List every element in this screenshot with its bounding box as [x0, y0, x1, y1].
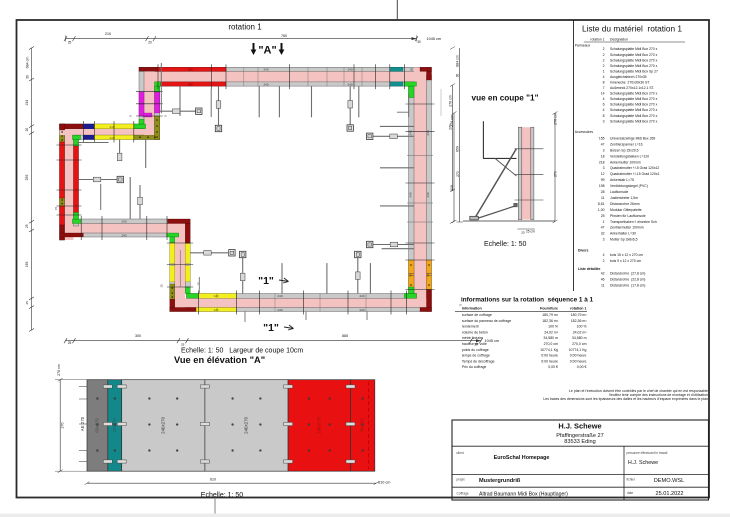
- svg-text:270 cm: 270 cm: [554, 113, 558, 125]
- svg-text:25: 25: [181, 343, 185, 347]
- svg-text:11: 11: [601, 196, 605, 200]
- svg-text:2: 2: [603, 259, 605, 263]
- svg-text:240: 240: [426, 130, 430, 135]
- svg-text:Echelle: 1: 50: Echelle: 1: 50: [484, 241, 527, 248]
- svg-text:100 %: 100 %: [577, 325, 587, 329]
- svg-text:4: 4: [603, 75, 605, 79]
- svg-text:10774,1 Kg: 10774,1 Kg: [540, 348, 558, 352]
- svg-text:Ausgleichsblech 270x35: Ausgleichsblech 270x35: [610, 75, 647, 79]
- svg-text:182,36 m²: 182,36 m²: [571, 319, 588, 323]
- svg-text:"A": "A": [258, 45, 276, 57]
- svg-text:0:00 heure: 0:00 heure: [541, 354, 558, 358]
- svg-text:temps de coffrage: temps de coffrage: [462, 354, 490, 358]
- svg-text:Schalungsplatte Midi Box 270 x: Schalungsplatte Midi Box 270 x: [610, 64, 658, 68]
- svg-text:Echelle: 1: 50: Echelle: 1: 50: [201, 492, 244, 499]
- svg-text:270: 270: [554, 171, 558, 177]
- svg-text:Pfosten für Laufkonsole: Pfosten für Laufkonsole: [610, 214, 646, 218]
- svg-text:180: 180: [187, 68, 192, 72]
- svg-text:14: 14: [601, 92, 605, 96]
- svg-text:3: 3: [603, 166, 605, 170]
- svg-text:Altrad Baumann Midi Box (Haupt: Altrad Baumann Midi Box (Hauptlager): [479, 492, 568, 498]
- svg-text:18: 18: [601, 154, 605, 158]
- svg-text:34,580 m: 34,580 m: [543, 336, 558, 340]
- svg-text:bois 15 x 12 x 270 cm: bois 15 x 12 x 270 cm: [610, 253, 643, 257]
- svg-text:4: 4: [603, 108, 605, 112]
- svg-text:182,36 m²: 182,36 m²: [542, 319, 559, 323]
- svg-text:1: 1: [603, 220, 605, 224]
- svg-text:684 cm: 684 cm: [26, 57, 30, 69]
- svg-text:25 cm: 25 cm: [526, 230, 535, 234]
- svg-text:240: 240: [359, 308, 364, 312]
- svg-text:AE 270: AE 270: [80, 416, 85, 431]
- svg-text:270,0 cm: 270,0 cm: [572, 342, 586, 346]
- svg-text:"1": "1": [263, 322, 279, 334]
- svg-text:198: 198: [599, 184, 605, 188]
- svg-text:0:00 heure: 0:00 heure: [541, 359, 558, 363]
- svg-text:Verdichtungskegel (PVC): Verdichtungskegel (PVC): [610, 184, 648, 188]
- svg-text:Schalungsplatte Midi Box 270 x: Schalungsplatte Midi Box 270 x: [610, 119, 658, 123]
- svg-text:Innenecke 270x30x30 ST.: Innenecke 270x30x30 ST.: [610, 81, 650, 85]
- svg-text:25: 25: [68, 41, 72, 45]
- svg-text:100 %: 100 %: [548, 325, 558, 329]
- svg-text:volume de béton: volume de béton: [462, 330, 488, 334]
- svg-text:0,00 €: 0,00 €: [548, 365, 558, 369]
- svg-text:Schalungsplatte Midi Box 270 x: Schalungsplatte Midi Box 270 x: [610, 108, 658, 112]
- svg-text:vue en coupe "1": vue en coupe "1": [472, 94, 539, 103]
- svg-text:8: 8: [603, 114, 605, 118]
- svg-text:rendement: rendement: [462, 325, 479, 329]
- svg-text:surface du panneau de coffrage: surface du panneau de coffrage: [462, 319, 511, 323]
- svg-text:Prix du coffrage: Prix du coffrage: [462, 365, 487, 369]
- svg-text:Liste du matériel rotation 1: Liste du matériel rotation 1: [582, 24, 682, 34]
- svg-text:34,580 m: 34,580 m: [572, 336, 587, 340]
- svg-text:240: 240: [277, 294, 282, 298]
- svg-text:2: 2: [603, 47, 605, 51]
- svg-text:270 cm: 270 cm: [57, 364, 61, 376]
- svg-text:609: 609: [450, 185, 454, 191]
- svg-text:Justierstrebe 1,5m: Justierstrebe 1,5m: [610, 196, 638, 200]
- svg-text:240: 240: [359, 294, 364, 298]
- svg-text:30: 30: [456, 74, 460, 78]
- svg-text:240: 240: [347, 82, 352, 86]
- svg-text:25: 25: [521, 231, 525, 235]
- svg-text:Distanzrohre (22,8 cm): Distanzrohre (22,8 cm): [610, 277, 645, 281]
- svg-text:12: 12: [601, 172, 605, 176]
- svg-text:32: 32: [601, 232, 605, 236]
- svg-text:25: 25: [25, 301, 29, 305]
- svg-text:10774,1 Kg: 10774,1 Kg: [569, 348, 587, 352]
- svg-text:2: 2: [603, 58, 605, 62]
- svg-text:270: 270: [456, 171, 460, 177]
- svg-text:80: 80: [426, 273, 430, 277]
- svg-text:Mutter Sp 3x8x6,5: Mutter Sp 3x8x6,5: [610, 238, 638, 242]
- svg-text:270 cm: 270 cm: [449, 95, 453, 107]
- svg-text:270: 270: [61, 423, 65, 429]
- svg-text:Distanzrohre (27,8 cm): Distanzrohre (27,8 cm): [610, 271, 645, 275]
- svg-text:rotation 1: rotation 1: [590, 38, 604, 42]
- svg-text:83533 Eding: 83533 Eding: [564, 439, 595, 445]
- svg-text:300: 300: [135, 334, 141, 338]
- svg-text:195: 195: [25, 262, 29, 268]
- svg-text:Schalungsplatte Midi Box 270 x: Schalungsplatte Midi Box 270 x: [610, 47, 658, 51]
- svg-text:20: 20: [148, 41, 152, 45]
- svg-text:42: 42: [601, 271, 605, 275]
- svg-text:25: 25: [601, 214, 605, 218]
- svg-text:surface de coffrage: surface de coffrage: [462, 313, 492, 317]
- svg-text:20: 20: [25, 128, 29, 132]
- svg-text:15: 15: [197, 282, 201, 286]
- svg-text:28: 28: [601, 190, 605, 194]
- svg-text:Accessoires: Accessoires: [575, 130, 594, 134]
- svg-text:métré linéaire: métré linéaire: [462, 336, 483, 340]
- svg-text:0:00 heure: 0:00 heure: [570, 359, 587, 363]
- svg-text:4: 4: [603, 97, 605, 101]
- svg-text:Schalungsplatte Midi Box 270 x: Schalungsplatte Midi Box 270 x: [610, 103, 658, 107]
- svg-text:240x270: 240x270: [244, 416, 249, 433]
- svg-text:684 cm: 684 cm: [456, 55, 460, 67]
- svg-text:659: 659: [456, 146, 460, 152]
- svg-text:client: client: [456, 451, 464, 455]
- svg-text:Information: Information: [462, 307, 482, 311]
- svg-text:3: 3: [603, 238, 605, 242]
- svg-text:0:00 heure: 0:00 heure: [570, 354, 587, 358]
- svg-text:Außeneck 270x12.1x12.1 ST.: Außeneck 270x12.1x12.1 ST.: [610, 86, 654, 90]
- svg-text:6: 6: [603, 103, 605, 107]
- svg-text:255: 255: [25, 175, 29, 181]
- svg-text:7: 7: [603, 86, 605, 90]
- svg-text:Mustergrundriß: Mustergrundriß: [479, 478, 521, 484]
- svg-text:0,00 €: 0,00 €: [577, 365, 587, 369]
- svg-text:240: 240: [426, 192, 430, 197]
- svg-text:poids du coffrage: poids du coffrage: [462, 348, 489, 352]
- svg-text:15: 15: [160, 284, 164, 288]
- svg-text:8,61: 8,61: [598, 202, 605, 206]
- svg-text:Panneaux: Panneaux: [575, 43, 591, 47]
- svg-text:885: 885: [342, 334, 348, 338]
- svg-text:11: 11: [601, 283, 605, 287]
- svg-text:Zentrierspanner L=16: Zentrierspanner L=16: [610, 142, 643, 146]
- svg-text:180x270: 180x270: [316, 416, 321, 433]
- svg-text:240x270: 240x270: [160, 416, 165, 433]
- svg-text:760: 760: [281, 34, 287, 38]
- svg-text:240: 240: [121, 233, 126, 237]
- svg-text:Schalungsplatte Midi Box 270 x: Schalungsplatte Midi Box 270 x: [610, 53, 658, 57]
- svg-text:47: 47: [601, 226, 605, 230]
- svg-text:25: 25: [25, 224, 29, 228]
- svg-text:610 cm: 610 cm: [378, 481, 390, 485]
- svg-text:134: 134: [25, 100, 29, 106]
- svg-text:rotation 1: rotation 1: [570, 307, 586, 311]
- svg-text:25.01.2022: 25.01.2022: [656, 491, 684, 497]
- svg-text:personne effectuant le travail: personne effectuant le travail: [627, 451, 668, 455]
- svg-text:hauteur de voile: hauteur de voile: [462, 342, 487, 346]
- svg-text:1,00: 1,00: [598, 208, 605, 212]
- svg-text:Echelle: 1: 50 Largeur de co: Echelle: 1: 50 Largeur de coupe 10cm: [181, 347, 303, 354]
- svg-text:180: 180: [187, 82, 192, 86]
- svg-text:EuroSchal Homepage: EuroSchal Homepage: [494, 455, 550, 461]
- svg-text:240: 240: [408, 192, 412, 197]
- svg-text:Bolzen Sp 15x29,5: Bolzen Sp 15x29,5: [610, 148, 639, 152]
- svg-text:180,79 m²: 180,79 m²: [542, 313, 559, 317]
- svg-text:Zentriermutter 100mm: Zentriermutter 100mm: [610, 226, 644, 230]
- svg-text:99: 99: [601, 178, 605, 182]
- svg-text:Divers: Divers: [578, 249, 588, 253]
- svg-text:Modular Gitterpalette: Modular Gitterpalette: [610, 208, 642, 212]
- svg-text:1045 cm: 1045 cm: [427, 37, 442, 41]
- svg-text:80: 80: [408, 273, 412, 277]
- svg-text:240: 240: [263, 68, 268, 72]
- svg-text:4: 4: [603, 253, 605, 257]
- svg-text:Schalungsplatte Midi Box 270 x: Schalungsplatte Midi Box 270 x: [610, 97, 658, 101]
- svg-text:P: P: [460, 304, 462, 308]
- svg-text:informations sur la rotation: informations sur la rotation séquence 1 …: [461, 297, 594, 304]
- svg-text:Distanzrohre (17,8 cm): Distanzrohre (17,8 cm): [610, 283, 645, 287]
- svg-text:240: 240: [121, 220, 126, 224]
- svg-text:30: 30: [410, 67, 414, 71]
- svg-text:Vue en élévation "A": Vue en élévation "A": [174, 355, 265, 365]
- svg-text:"1": "1": [258, 275, 274, 287]
- svg-text:Ankermutter 100mm: Ankermutter 100mm: [610, 160, 641, 164]
- svg-text:Les bases des dimensions sont: Les bases des dimensions sont les épaiss…: [543, 397, 708, 401]
- svg-text:46: 46: [601, 277, 605, 281]
- svg-text:rotation 1: rotation 1: [228, 23, 262, 32]
- svg-text:25: 25: [68, 341, 72, 345]
- svg-text:Ankerstab L=75: Ankerstab L=75: [610, 178, 634, 182]
- svg-text:270 cm: 270 cm: [450, 115, 454, 127]
- svg-text:155: 155: [599, 137, 605, 141]
- svg-text:3: 3: [603, 148, 605, 152]
- svg-text:8: 8: [603, 81, 605, 85]
- svg-text:Fourniture: Fourniture: [540, 307, 558, 311]
- svg-text:Temps de décoffrage: Temps de décoffrage: [462, 359, 495, 363]
- svg-text:24,02 m³: 24,02 m³: [573, 330, 588, 334]
- svg-text:47: 47: [601, 142, 605, 146]
- svg-text:Ankerhalter L=30: Ankerhalter L=30: [610, 232, 636, 236]
- svg-text:Pfaffingerstraße 27: Pfaffingerstraße 27: [556, 433, 603, 439]
- svg-text:240: 240: [408, 130, 412, 135]
- svg-text:Schalungsplatte Midi Box 270 x: Schalungsplatte Midi Box 270 x: [610, 92, 658, 96]
- svg-text:218: 218: [599, 160, 605, 164]
- svg-text:fichier: fichier: [627, 478, 636, 482]
- svg-text:610: 610: [210, 478, 216, 482]
- svg-text:Coffrage: Coffrage: [457, 492, 469, 496]
- svg-text:120: 120: [214, 294, 219, 298]
- svg-text:Schalungsplatte Midi Box 270 x: Schalungsplatte Midi Box 270 x: [610, 114, 658, 118]
- svg-text:bois 9 x 12 x 270 cm: bois 9 x 12 x 270 cm: [610, 259, 641, 263]
- svg-text:Transporthaken f. einzelne Sch: Transporthaken f. einzelne Sch: [610, 220, 657, 224]
- svg-text:Quadratmutter +/-15 Grad 120x1: Quadratmutter +/-15 Grad 120x1: [610, 172, 659, 176]
- svg-text:240: 240: [263, 82, 268, 86]
- svg-text:Désignation: Désignation: [610, 38, 628, 42]
- svg-text:Quadratmutter +/-5 Grad 120x12: Quadratmutter +/-5 Grad 120x12: [610, 166, 659, 170]
- svg-text:projet: projet: [457, 478, 465, 482]
- svg-text:Distanzrohre 26mm: Distanzrohre 26mm: [610, 202, 640, 206]
- svg-text:2: 2: [603, 64, 605, 68]
- svg-text:Schalungsplatte Midi Box Sp 27: Schalungsplatte Midi Box Sp 27: [610, 69, 658, 73]
- svg-text:Universalzwinge Midi Box 269: Universalzwinge Midi Box 269: [610, 137, 655, 141]
- svg-text:240: 240: [277, 308, 282, 312]
- svg-text:1: 1: [603, 69, 605, 73]
- svg-text:2: 2: [603, 53, 605, 57]
- svg-text:DEMO.WSL: DEMO.WSL: [654, 478, 684, 484]
- svg-text:H.J. Schewe: H.J. Schewe: [628, 460, 658, 466]
- svg-text:180,79 m²: 180,79 m²: [571, 313, 588, 317]
- svg-text:Schalungsplatte Midi Box 270 x: Schalungsplatte Midi Box 270 x: [610, 58, 658, 62]
- svg-text:15: 15: [54, 207, 58, 211]
- svg-text:210: 210: [105, 32, 111, 36]
- svg-text:3: 3: [603, 119, 605, 123]
- svg-text:30: 30: [26, 75, 30, 79]
- svg-text:Liste détaillée: Liste détaillée: [578, 267, 601, 271]
- svg-text:30: 30: [417, 40, 421, 44]
- svg-text:240: 240: [347, 68, 352, 72]
- svg-text:date: date: [627, 491, 633, 495]
- svg-text:Versteifungsbalken L=120: Versteifungsbalken L=120: [610, 154, 649, 158]
- svg-text:24,02 m³: 24,02 m³: [544, 330, 559, 334]
- svg-text:120: 120: [214, 308, 219, 312]
- svg-text:270,0 cm: 270,0 cm: [544, 342, 558, 346]
- svg-text:H.J. Schewe: H.J. Schewe: [558, 421, 601, 430]
- svg-text:Laufkonsole: Laufkonsole: [610, 190, 628, 194]
